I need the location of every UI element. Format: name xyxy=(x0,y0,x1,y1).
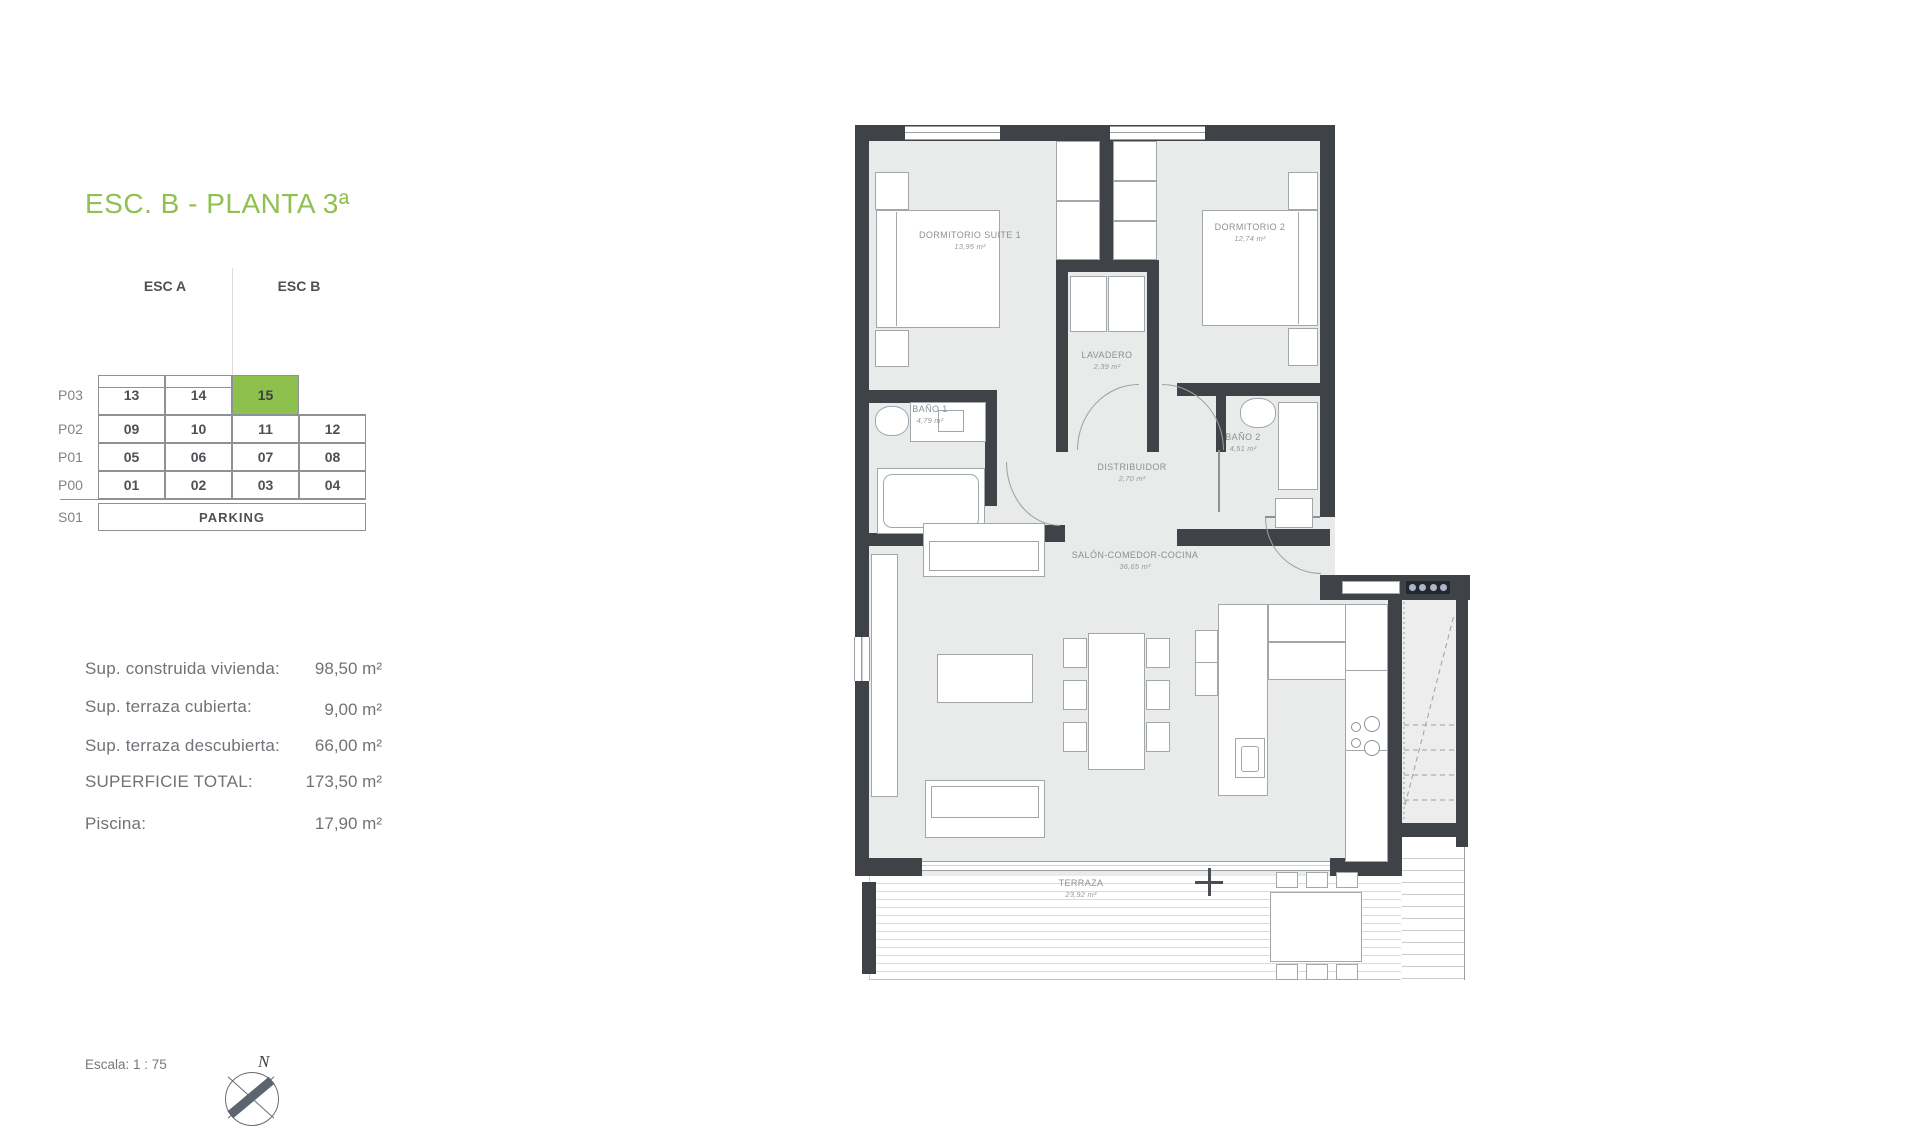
sink xyxy=(1275,498,1313,528)
intercom-dot xyxy=(1409,584,1416,591)
compass-north-label: N xyxy=(258,1052,269,1072)
staircase-lower-steps xyxy=(1402,847,1465,980)
cooktop-burner xyxy=(1364,740,1380,756)
dining-chair xyxy=(1063,638,1087,668)
floor-plan: DORMITORIO SUITE 1 13,95 m² DORMITORIO 2… xyxy=(850,110,1480,990)
wall-segment xyxy=(855,125,869,876)
wall-segment xyxy=(1320,125,1335,517)
outdoor-table xyxy=(1270,892,1362,962)
floor-plan-sheet: ESC. B - PLANTA 3ª ESC A ESC B P03 P02 P… xyxy=(0,0,1920,1140)
wall-segment xyxy=(1456,575,1468,847)
kitchen-counter xyxy=(1268,642,1346,680)
closet-cell xyxy=(1056,201,1100,260)
unit-cell-14: 14 xyxy=(165,375,232,415)
window xyxy=(854,637,870,681)
table-separator-line xyxy=(60,499,366,500)
kitchen-unit xyxy=(1195,630,1218,696)
area-value-vivienda: 98,50 m² xyxy=(270,659,382,679)
table-guide-line xyxy=(232,268,233,375)
bed xyxy=(876,210,1000,328)
survey-cross-icon xyxy=(1208,868,1211,896)
entry-shelf xyxy=(1342,581,1400,594)
page-title: ESC. B - PLANTA 3ª xyxy=(85,188,350,220)
unit-cell-06: 06 xyxy=(165,443,232,471)
unit-cell-11: 11 xyxy=(232,415,299,443)
dining-chair xyxy=(1063,680,1087,710)
outdoor-chair xyxy=(1276,872,1298,888)
unit-cell-01: 01 xyxy=(98,471,165,499)
row-label-p00: P00 xyxy=(58,471,94,499)
row-label-p01: P01 xyxy=(58,443,94,471)
unit-cell-03: 03 xyxy=(232,471,299,499)
area-value-terraza-cubierta: 9,00 m² xyxy=(270,700,382,720)
nightstand xyxy=(875,330,909,367)
wall-segment xyxy=(862,882,876,974)
room-label-distribuidor: DISTRIBUIDOR 2,70 m² xyxy=(1082,462,1182,484)
wall-segment xyxy=(1177,383,1330,396)
cooktop-burner xyxy=(1351,722,1361,732)
bed-pillow-line xyxy=(896,212,897,326)
room-label-lavadero: LAVADERO 2,39 m² xyxy=(1058,350,1156,372)
wall-segment xyxy=(1402,823,1468,837)
outdoor-chair xyxy=(1306,964,1328,980)
wall-segment xyxy=(1388,600,1402,876)
wall-segment xyxy=(1100,141,1113,260)
table-header-esc-a: ESC A xyxy=(98,278,232,298)
unit-cell-09: 09 xyxy=(98,415,165,443)
parking-cell: PARKING xyxy=(98,503,366,531)
bathtub-inner xyxy=(883,474,979,528)
row-label-s01: S01 xyxy=(58,503,94,531)
staircase-upper xyxy=(1402,600,1456,823)
area-value-piscina: 17,90 m² xyxy=(270,814,382,834)
sofa-seat xyxy=(931,786,1039,818)
closet-cell xyxy=(1113,141,1157,181)
dining-chair xyxy=(1146,722,1170,752)
row-label-p02: P02 xyxy=(58,415,94,443)
area-value-terraza-descubierta: 66,00 m² xyxy=(270,736,382,756)
washer xyxy=(1070,276,1107,332)
island-sink-basin xyxy=(1241,746,1259,772)
area-label-superficie-total: SUPERFICIE TOTAL: xyxy=(85,772,253,792)
nightstand xyxy=(1288,172,1318,210)
shower xyxy=(1278,402,1318,490)
room-label-bano-1: BAÑO 1 4,79 m² xyxy=(898,404,962,426)
nightstand xyxy=(1288,328,1318,366)
room-label-bano-2: BAÑO 2 4,51 m² xyxy=(1208,432,1278,454)
cooktop-burner xyxy=(1351,738,1361,748)
cooktop-burner xyxy=(1364,716,1380,732)
intercom-dot xyxy=(1430,584,1437,591)
outdoor-chair xyxy=(1306,872,1328,888)
intercom-panel xyxy=(1406,581,1450,594)
kitchen-unit-divider xyxy=(1195,662,1218,663)
closet-cell xyxy=(1113,181,1157,221)
sliding-glass-door xyxy=(922,861,1330,871)
room-label-dormitorio-2: DORMITORIO 2 12,74 m² xyxy=(1190,222,1310,244)
toilet xyxy=(1240,398,1276,428)
outdoor-chair xyxy=(1336,872,1358,888)
window xyxy=(905,126,1000,140)
closet-cell xyxy=(1056,141,1100,201)
area-label-terraza-descubierta: Sup. terraza descubierta: xyxy=(85,736,280,756)
wall-segment xyxy=(985,403,997,506)
window xyxy=(1110,126,1205,140)
outdoor-chair xyxy=(1276,964,1298,980)
room-label-dormitorio-suite-1: DORMITORIO SUITE 1 13,95 m² xyxy=(905,230,1035,252)
room-label-terraza: TERRAZA 23,92 m² xyxy=(1021,878,1141,900)
unit-cell-13: 13 xyxy=(98,375,165,415)
dining-table xyxy=(1088,633,1145,770)
row-label-p03: P03 xyxy=(58,375,94,415)
wall-segment xyxy=(1056,260,1159,272)
coffee-table xyxy=(937,654,1033,703)
unit-cell-04: 04 xyxy=(299,471,366,499)
dryer xyxy=(1108,276,1145,332)
table-inner-line xyxy=(99,387,231,388)
kitchen-counter xyxy=(1345,604,1388,862)
dining-chair xyxy=(1063,722,1087,752)
outdoor-chair xyxy=(1336,964,1358,980)
unit-cell-12: 12 xyxy=(299,415,366,443)
sideboard xyxy=(871,554,898,797)
unit-cell-05: 05 xyxy=(98,443,165,471)
unit-cell-02: 02 xyxy=(165,471,232,499)
area-label-terraza-cubierta: Sup. terraza cubierta: xyxy=(85,697,252,717)
intercom-dot xyxy=(1419,584,1426,591)
intercom-dot xyxy=(1440,584,1447,591)
unit-cell-08: 08 xyxy=(299,443,366,471)
door-leaf xyxy=(1218,450,1220,512)
area-label-piscina: Piscina: xyxy=(85,814,146,834)
nightstand xyxy=(875,172,909,210)
room-label-salon-comedor-cocina: SALÓN-COMEDOR-COCINA 36,65 m² xyxy=(1055,550,1215,572)
unit-cell-10: 10 xyxy=(165,415,232,443)
table-header-esc-b: ESC B xyxy=(232,278,366,298)
counter-divider xyxy=(1346,670,1387,671)
closet-cell xyxy=(1113,221,1157,260)
unit-cell-15-highlighted: 15 xyxy=(232,375,299,415)
kitchen-counter xyxy=(1268,604,1346,642)
dining-chair xyxy=(1146,638,1170,668)
wall-segment xyxy=(855,858,922,876)
scale-note: Escala: 1 : 75 xyxy=(85,1057,167,1072)
unit-cell-07: 07 xyxy=(232,443,299,471)
sofa-seat xyxy=(929,541,1039,571)
dining-chair xyxy=(1146,680,1170,710)
staircase-dashed-lines xyxy=(1402,600,1456,823)
area-value-superficie-total: 173,50 m² xyxy=(270,772,382,792)
area-label-vivienda: Sup. construida vivienda: xyxy=(85,659,280,679)
